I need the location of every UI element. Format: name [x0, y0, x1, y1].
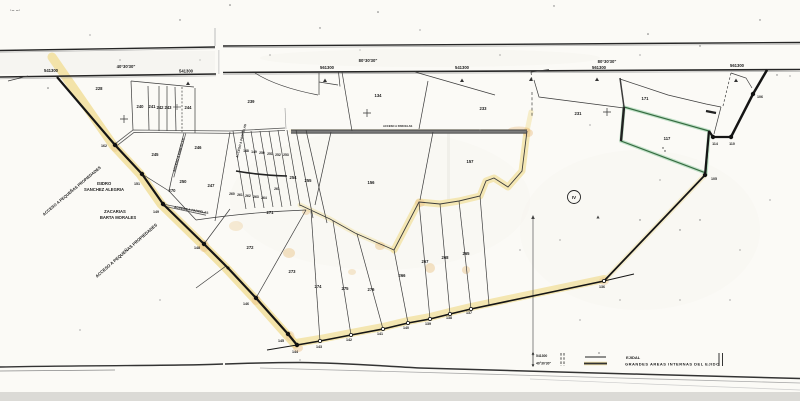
svg-text:228: 228: [96, 86, 104, 91]
svg-text:SANCHEZ ALEGRIA: SANCHEZ ALEGRIA: [84, 187, 124, 192]
svg-text:541300: 541300: [536, 354, 547, 358]
svg-text:267: 267: [422, 259, 430, 264]
svg-text:139: 139: [425, 322, 431, 326]
svg-text:117: 117: [664, 136, 671, 141]
svg-text:276: 276: [368, 287, 376, 292]
svg-text:148: 148: [194, 246, 200, 250]
svg-text:270: 270: [169, 188, 177, 193]
svg-text:148: 148: [243, 149, 249, 153]
svg-text:ZACARIAS: ZACARIAS: [104, 209, 126, 214]
svg-text:80°30'30": 80°30'30": [359, 58, 378, 63]
svg-text:243: 243: [165, 105, 173, 110]
svg-text:151: 151: [134, 182, 140, 186]
svg-text:541300: 541300: [44, 68, 59, 73]
svg-text:242: 242: [157, 105, 165, 110]
svg-text:149: 149: [153, 210, 159, 214]
svg-text:263: 263: [253, 195, 259, 199]
svg-text:110: 110: [729, 142, 735, 146]
svg-text:ACCESO A PARCELAS: ACCESO A PARCELAS: [383, 124, 413, 128]
svg-text:541300: 541300: [455, 65, 470, 70]
svg-text:40°30'30": 40°30'30": [536, 362, 551, 366]
svg-text:106: 106: [757, 95, 763, 99]
svg-text:266: 266: [399, 273, 407, 278]
svg-text:253: 253: [283, 153, 289, 157]
svg-text:105: 105: [711, 177, 717, 181]
svg-text:254: 254: [290, 175, 298, 180]
svg-text:245: 245: [152, 152, 160, 157]
svg-text:247: 247: [208, 183, 216, 188]
svg-text:241: 241: [149, 104, 157, 109]
svg-text:231: 231: [575, 111, 583, 116]
svg-text:141: 141: [377, 332, 383, 336]
svg-text:244: 244: [185, 105, 193, 110]
svg-text:EJIDAL: EJIDAL: [626, 355, 641, 360]
svg-text:261: 261: [237, 193, 243, 197]
svg-text:157: 157: [467, 159, 475, 164]
svg-text:264: 264: [261, 196, 267, 200]
svg-text:171: 171: [642, 96, 650, 101]
svg-text:144: 144: [292, 350, 298, 354]
svg-text:561300: 561300: [730, 63, 745, 68]
svg-text:145: 145: [278, 339, 284, 343]
svg-text:265: 265: [463, 251, 471, 256]
svg-text:561300: 561300: [592, 65, 607, 70]
svg-text:146: 146: [243, 302, 249, 306]
svg-text:162: 162: [101, 144, 107, 148]
svg-text:114: 114: [712, 142, 718, 146]
svg-text:274: 274: [315, 284, 323, 289]
svg-text:156: 156: [368, 180, 376, 185]
svg-text:275: 275: [342, 286, 350, 291]
svg-text:·– –·: ·– –·: [10, 8, 21, 14]
svg-text:239: 239: [248, 99, 256, 104]
svg-text:273: 273: [289, 269, 297, 274]
svg-text:262: 262: [245, 194, 251, 198]
svg-text:261: 261: [274, 187, 280, 191]
svg-text:142: 142: [346, 338, 352, 342]
svg-text:271: 271: [267, 210, 275, 215]
svg-text:134: 134: [375, 93, 383, 98]
svg-text:ISIDRO: ISIDRO: [97, 181, 112, 186]
svg-text:136: 136: [599, 285, 605, 289]
svg-text:561300: 561300: [320, 65, 335, 70]
svg-text:260: 260: [229, 192, 235, 196]
svg-text:233: 233: [480, 106, 488, 111]
svg-text:250: 250: [259, 151, 265, 155]
svg-text:80°30'30": 80°30'30": [598, 59, 617, 64]
svg-text:138: 138: [446, 316, 452, 320]
svg-text:IV: IV: [572, 195, 576, 200]
svg-text:149: 149: [251, 150, 257, 154]
svg-text:40°30'30": 40°30'30": [117, 64, 136, 69]
svg-text:246: 246: [195, 145, 203, 150]
svg-text:268: 268: [442, 255, 450, 260]
svg-text:251: 251: [267, 152, 273, 156]
svg-text:240: 240: [137, 104, 145, 109]
svg-text:BARTA MORALES: BARTA MORALES: [100, 215, 136, 220]
svg-text:250: 250: [180, 179, 188, 184]
svg-text:272: 272: [247, 245, 255, 250]
svg-text:541300: 541300: [179, 69, 194, 74]
svg-text:137: 137: [466, 311, 472, 315]
svg-text:GRANDES AREAS INTERNAS DEL EJI: GRANDES AREAS INTERNAS DEL EJIDO: [625, 362, 720, 367]
svg-text:143: 143: [316, 345, 322, 349]
svg-text:255: 255: [305, 178, 313, 183]
svg-text:252: 252: [275, 153, 281, 157]
svg-text:140: 140: [403, 326, 409, 330]
